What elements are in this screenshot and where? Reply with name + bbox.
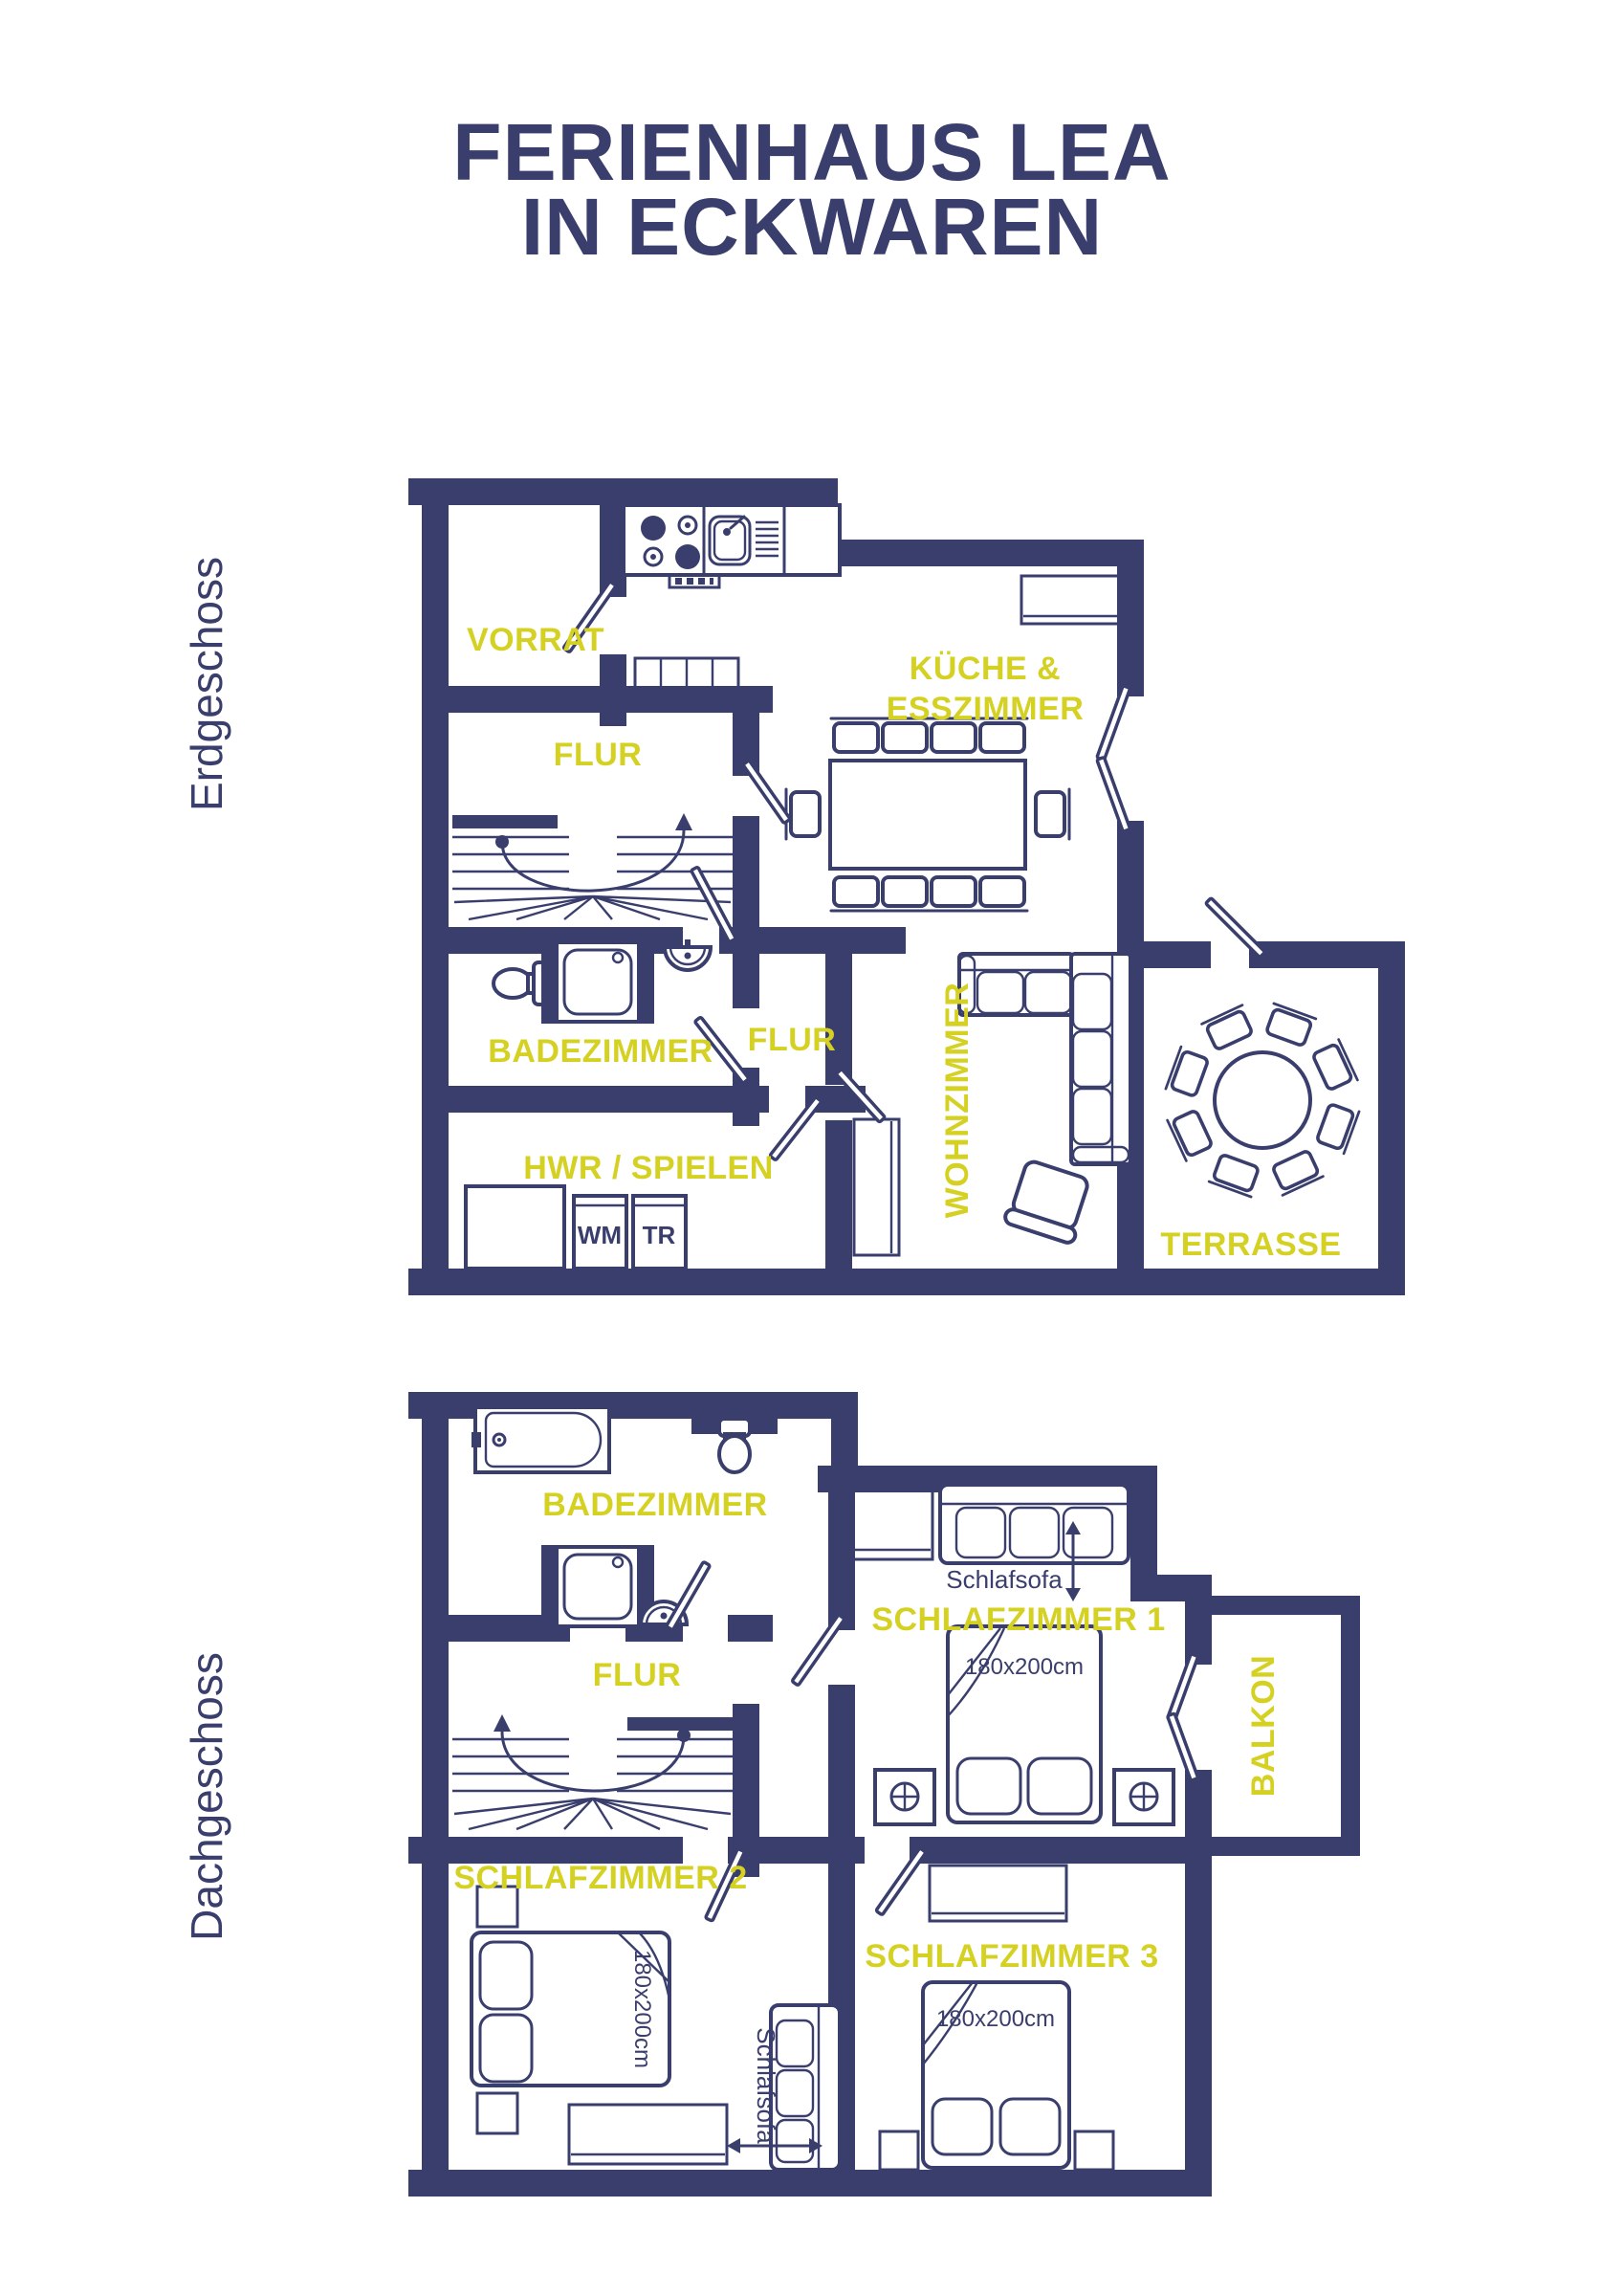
- door-leaf: [743, 761, 791, 824]
- dryer-icon: TR: [633, 1196, 686, 1269]
- terrace-table-icon: [1166, 1004, 1359, 1197]
- floorplan-image: FERIENHAUS LEA IN ECKWAREN Erdgeschoss: [0, 0, 1623, 2296]
- chair-icon: [831, 877, 881, 911]
- balcony-door-leaf: [1168, 1654, 1198, 1721]
- sideboard-icon: [854, 1119, 899, 1255]
- room-label-vorrat: VORRAT: [467, 622, 604, 658]
- sleeper-sofa-icon: [940, 1485, 1129, 1563]
- room-label-badezimmer: BADEZIMMER: [542, 1487, 767, 1523]
- door-leaf: [770, 1097, 822, 1160]
- dresser-icon: [569, 2105, 727, 2164]
- french-door-leaf: [1097, 757, 1130, 831]
- wardrobe-icon: [849, 1485, 932, 1559]
- door-leaf: [792, 1615, 844, 1686]
- room-label-hwr: HWR / SPIELEN: [523, 1150, 774, 1186]
- sleeper-sofa-label: Schlafsofa: [946, 1565, 1063, 1594]
- chair-icon: [1315, 1101, 1359, 1154]
- washing-machine-label: WM: [578, 1221, 622, 1249]
- dresser-icon: [930, 1865, 1066, 1921]
- attic-floor-plan: Dachgeschoss: [182, 1405, 1350, 2183]
- double-bed: 180x200cm: [472, 1932, 669, 2086]
- floor-label-dachgeschoss: Dachgeschoss: [182, 1652, 231, 1941]
- staircase: [452, 813, 733, 919]
- armchair-icon: [1003, 1159, 1093, 1245]
- dining-table-icon: [786, 718, 1069, 911]
- room-label-kueche-line1: KÜCHE &: [910, 651, 1061, 687]
- room-label-schlafzimmer3: SCHLAFZIMMER 3: [865, 1938, 1158, 1975]
- chair-icon: [1202, 1005, 1256, 1051]
- stairs-up-arrow: [675, 813, 692, 830]
- storage-box-icon: [466, 1186, 564, 1269]
- ground-floor-plan: Erdgeschoss: [182, 492, 1392, 1282]
- bed-size-label: 180x200cm: [629, 1950, 655, 2068]
- shower-icon: [541, 1545, 654, 1628]
- corner-sofa-icon: [959, 954, 1130, 1164]
- french-door-leaf: [1097, 686, 1130, 761]
- room-label-wohnzimmer: WOHNZIMMER: [939, 982, 976, 1219]
- chair-icon: [977, 877, 1027, 911]
- room-label-flur2: FLUR: [748, 1022, 837, 1058]
- terrace-door-leaf: [1206, 898, 1265, 958]
- toilet-icon: [719, 1419, 750, 1472]
- shower-icon: [541, 940, 654, 1024]
- chair-icon: [880, 877, 930, 911]
- chair-icon: [1209, 1153, 1261, 1197]
- stairs-up-arrow: [493, 1714, 511, 1732]
- floor-label-erdgeschoss: Erdgeschoss: [182, 557, 231, 811]
- chair-icon: [1270, 1149, 1324, 1195]
- nightstand-icon: [477, 2093, 517, 2133]
- room-label-balkon: BALKON: [1245, 1655, 1282, 1797]
- room-label-kueche-line2: ESSZIMMER: [887, 691, 1085, 727]
- room-label-flur: FLUR: [593, 1657, 682, 1693]
- chair-icon: [1263, 1004, 1316, 1048]
- double-bed: 180x200cm: [923, 1982, 1069, 2168]
- door-leaf: [876, 1848, 926, 1915]
- chair-icon: [1036, 789, 1069, 839]
- page-title-line2: IN ECKWAREN: [521, 182, 1103, 272]
- chair-icon: [786, 789, 820, 839]
- nightstand-icon: [1075, 2131, 1113, 2170]
- chair-icon: [1168, 1108, 1214, 1161]
- dryer-label: TR: [643, 1221, 676, 1249]
- staircase: [452, 1714, 733, 1829]
- room-label-terrasse: TERRASSE: [1160, 1226, 1341, 1263]
- bathtub-icon: [472, 1407, 609, 1472]
- double-bed: 180x200cm: [948, 1626, 1101, 1822]
- chair-icon: [831, 718, 881, 752]
- nightstand-icon: [1114, 1770, 1173, 1824]
- washing-machine-icon: WM: [574, 1196, 626, 1269]
- chair-icon: [1166, 1047, 1210, 1099]
- door-leaf: [691, 867, 736, 942]
- bed-size-label: 180x200cm: [936, 2006, 1055, 2032]
- nightstand-icon: [875, 1770, 934, 1824]
- chair-icon: [1311, 1040, 1357, 1093]
- page: FERIENHAUS LEA IN ECKWAREN Erdgeschoss: [0, 0, 1623, 2296]
- room-label-flur: FLUR: [554, 737, 643, 773]
- room-label-badezimmer: BADEZIMMER: [488, 1033, 713, 1070]
- room-label-schlafzimmer1: SCHLAFZIMMER 1: [871, 1601, 1165, 1638]
- chair-icon: [929, 877, 978, 911]
- bed-size-label: 180x200cm: [965, 1654, 1084, 1680]
- nightstand-icon: [880, 2131, 918, 2170]
- kitchen-counter-icon: [624, 505, 840, 587]
- room-label-schlafzimmer2: SCHLAFZIMMER 2: [453, 1860, 747, 1896]
- sleeper-sofa-label: Schlafsofa: [752, 2027, 780, 2144]
- sideboard-icon: [1021, 576, 1129, 624]
